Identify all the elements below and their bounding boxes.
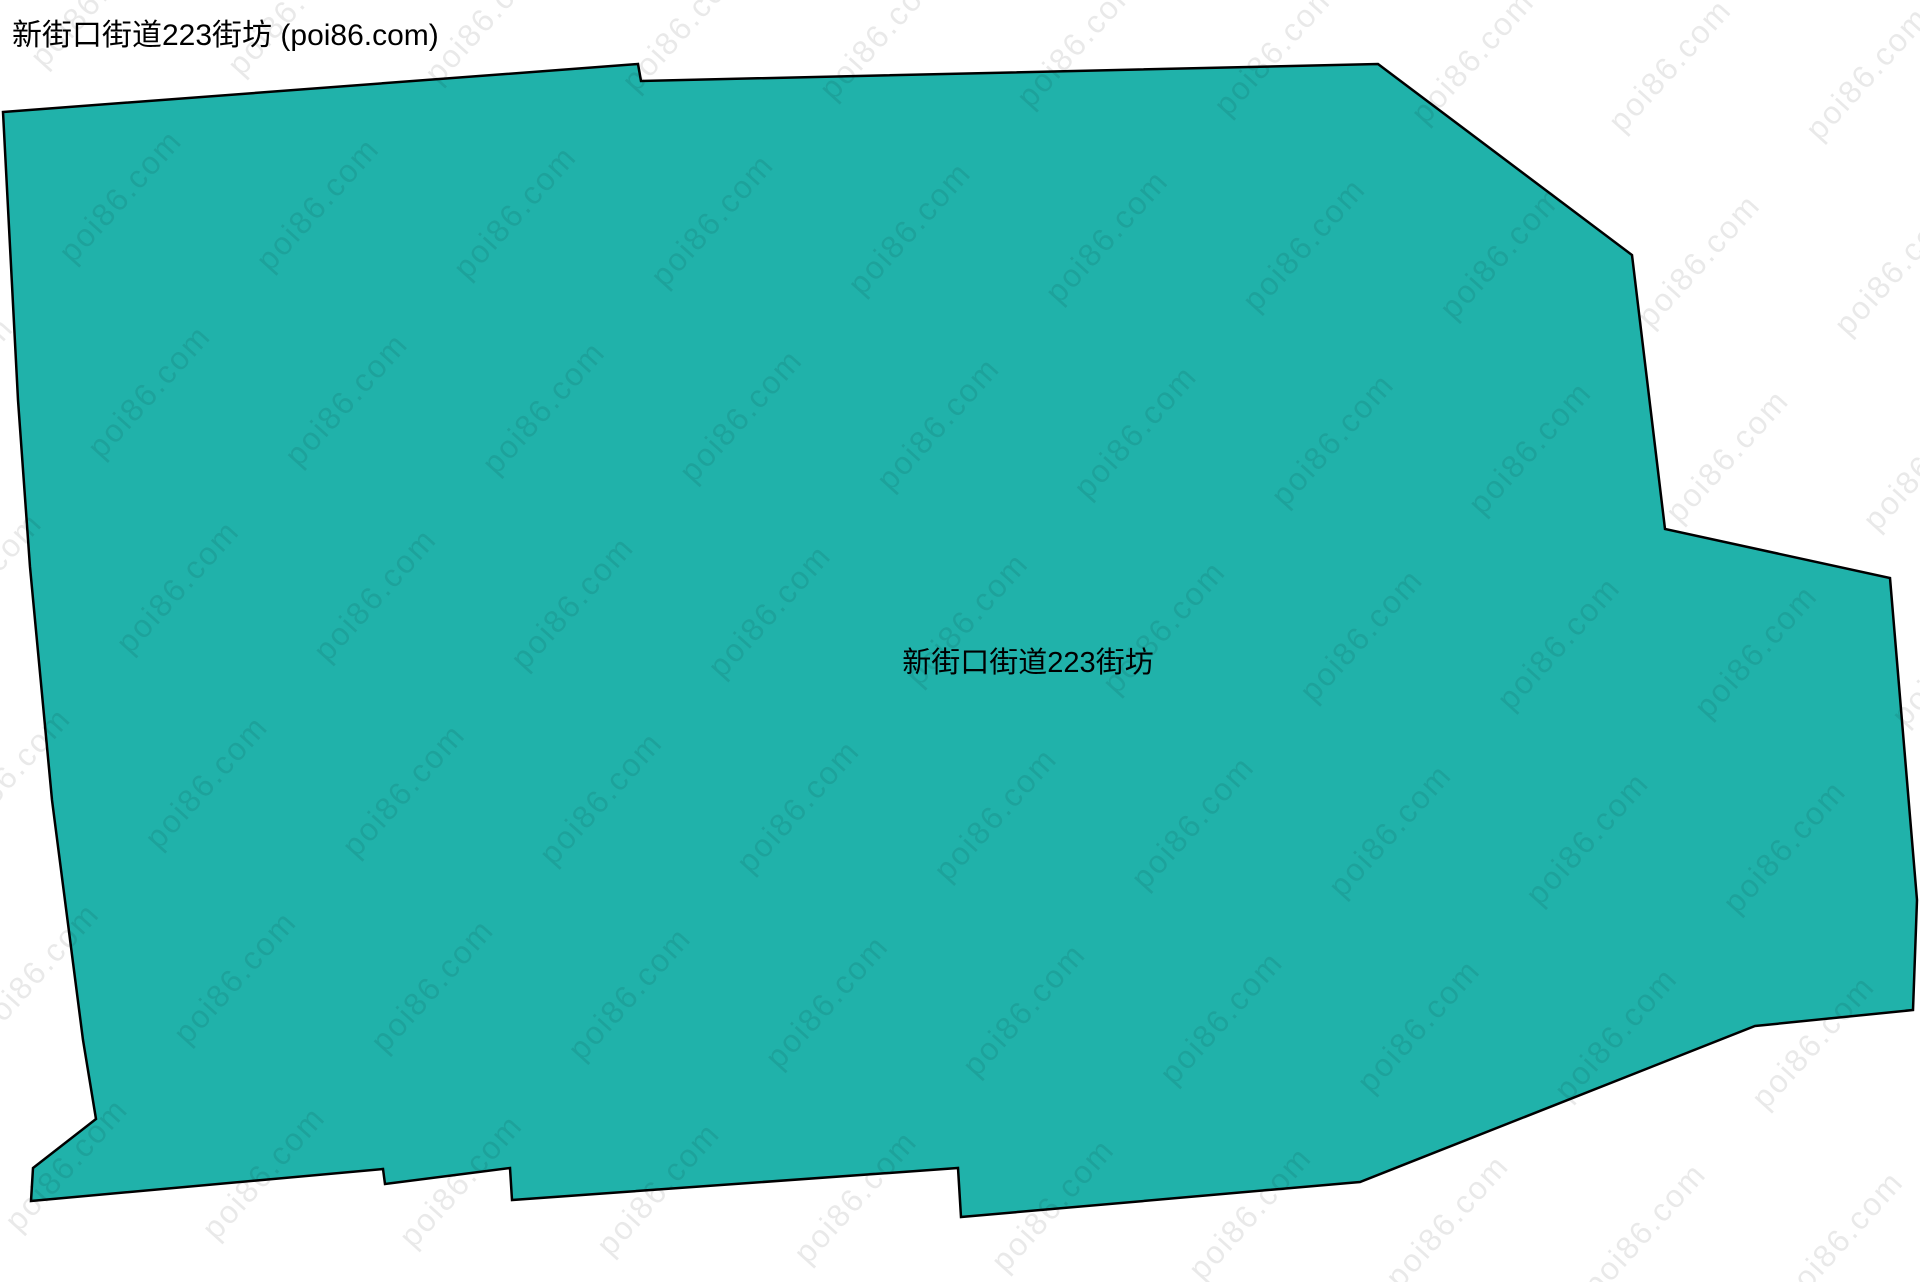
page-title: 新街口街道223街坊 (poi86.com) (12, 10, 439, 54)
map-viewport: poi86.compoi86.compoi86.compoi86.compoi8… (0, 0, 1920, 1282)
region-label: 新街口街道223街坊 (902, 639, 1153, 681)
